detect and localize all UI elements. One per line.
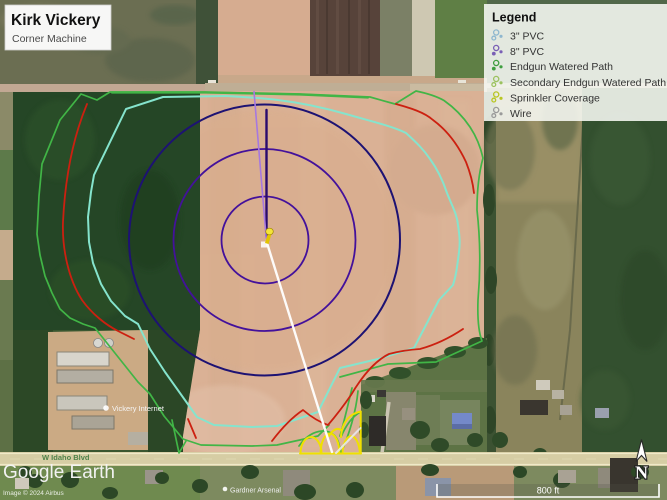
svg-text:Corner Machine: Corner Machine (12, 33, 87, 45)
svg-text:Secondary Endgun Watered Path: Secondary Endgun Watered Path (510, 77, 666, 89)
svg-text:8" PVC: 8" PVC (510, 46, 544, 58)
svg-text:Legend: Legend (492, 11, 536, 25)
svg-text:800 ft: 800 ft (537, 486, 560, 496)
svg-text:Kirk Vickery: Kirk Vickery (11, 12, 101, 29)
svg-text:Endgun Watered Path: Endgun Watered Path (510, 61, 613, 73)
svg-text:Wire: Wire (510, 108, 532, 120)
svg-text:Google Earth: Google Earth (3, 462, 115, 483)
svg-text:Image © 2024 Airbus: Image © 2024 Airbus (3, 489, 65, 497)
svg-text:Gardner Arsenal: Gardner Arsenal (230, 488, 281, 495)
svg-text:Vickery Internet: Vickery Internet (112, 404, 165, 413)
svg-text:3" PVC: 3" PVC (510, 31, 544, 43)
svg-text:Sprinkler Coverage: Sprinkler Coverage (510, 93, 600, 105)
svg-text:N: N (635, 463, 648, 483)
svg-text:W Idaho Blvd: W Idaho Blvd (42, 453, 90, 462)
